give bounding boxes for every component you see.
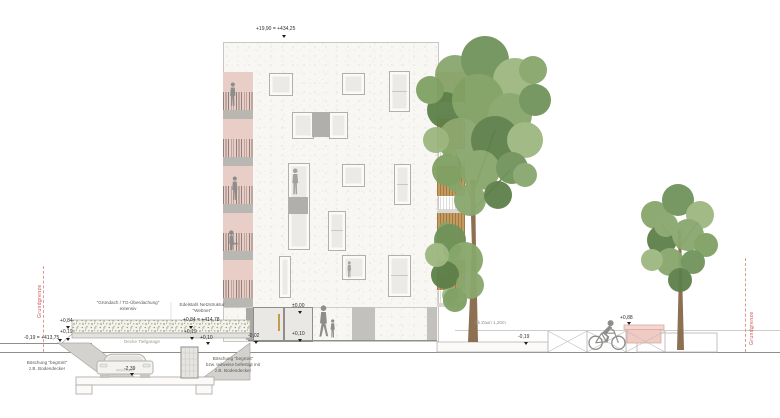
garage-slab <box>72 333 250 338</box>
property-line-right-label: Grundgrenze <box>749 311 755 345</box>
fence-label: Ok Zaun 1,20m <box>470 320 510 326</box>
mesh-label: Edelstahl Netzstruktur "Webnet" <box>174 302 230 314</box>
level-marker-triangle <box>282 35 286 38</box>
level-garage-slab-right: +0,19 <box>184 330 197 336</box>
level-garage-roof-left: +0,84 <box>60 319 73 325</box>
level-marker-triangle <box>58 339 62 342</box>
person-figure <box>347 261 351 277</box>
child-figure <box>331 319 335 337</box>
garage-section <box>58 302 250 394</box>
garage-ceiling-label: Decke Tiefgarage <box>112 339 172 345</box>
green-roof <box>72 320 250 333</box>
level-storefront: ±0,00 <box>292 304 304 310</box>
level-bench: +0,88 <box>620 316 633 322</box>
garage-door <box>181 347 198 378</box>
person-figure <box>230 82 235 105</box>
level-ground-left: -0,19 = +413,75 <box>24 336 59 342</box>
elevation-drawing: Grundgrenze Grundgrenze +19,90 = +434,25… <box>0 0 780 418</box>
slope-right-label: Böschung "begrünt" bzw. teilweise befest… <box>202 356 264 374</box>
low-wall <box>437 342 548 352</box>
level-roof: +19,90 = +434,25 <box>256 27 295 33</box>
level-marker-triangle <box>190 337 194 340</box>
property-line-left-label: Grundgrenze <box>37 284 43 318</box>
level-entrance: -0,02 <box>248 334 259 340</box>
level-garage-slab-left: +0,19 <box>60 330 73 336</box>
level-garage-floor: -2,39 <box>124 367 135 373</box>
large-tree <box>416 36 551 342</box>
street-elements <box>437 325 717 352</box>
person-figure-seated <box>229 230 238 250</box>
green-roof-label: "Gründach / TG-Überdachung" extensiv <box>92 300 164 312</box>
level-marker-triangle <box>66 338 70 341</box>
slope-left-label: Böschung "begrünt" z.B. Bodendecker <box>18 360 76 372</box>
level-marker-triangle <box>298 339 302 342</box>
person-figure <box>232 176 237 199</box>
level-entrance-walk: +0,10 <box>292 332 305 338</box>
footing <box>196 385 212 394</box>
level-marker-triangle <box>298 311 302 314</box>
scene-graphics <box>0 0 780 418</box>
level-marker-triangle <box>524 342 528 345</box>
property-line-right <box>745 258 746 352</box>
level-street: -0,19 <box>518 335 529 341</box>
level-marker-triangle <box>130 373 134 376</box>
level-marker-triangle <box>254 341 258 344</box>
footing <box>76 385 92 394</box>
person-figure <box>292 169 298 195</box>
level-marker-triangle <box>206 342 210 345</box>
level-marker-triangle <box>627 322 631 325</box>
level-garage-walk-right: +0,10 <box>200 336 213 342</box>
bench <box>624 325 664 343</box>
person-figure-walking <box>319 305 328 336</box>
level-garage-roof-right: +0,84 = +414,78 <box>183 318 220 324</box>
